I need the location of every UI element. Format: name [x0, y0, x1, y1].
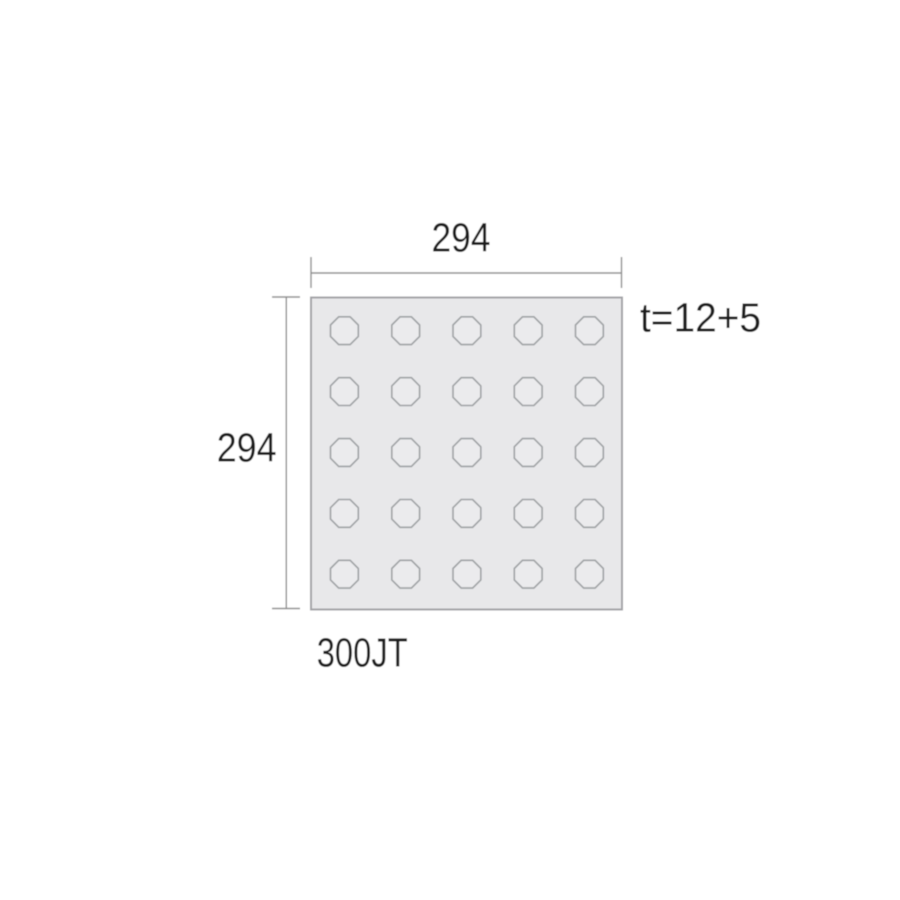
svg-text:300JT: 300JT	[317, 630, 408, 676]
svg-text:t=12+5: t=12+5	[640, 295, 761, 341]
svg-text:294: 294	[217, 425, 277, 471]
svg-text:294: 294	[432, 215, 491, 261]
